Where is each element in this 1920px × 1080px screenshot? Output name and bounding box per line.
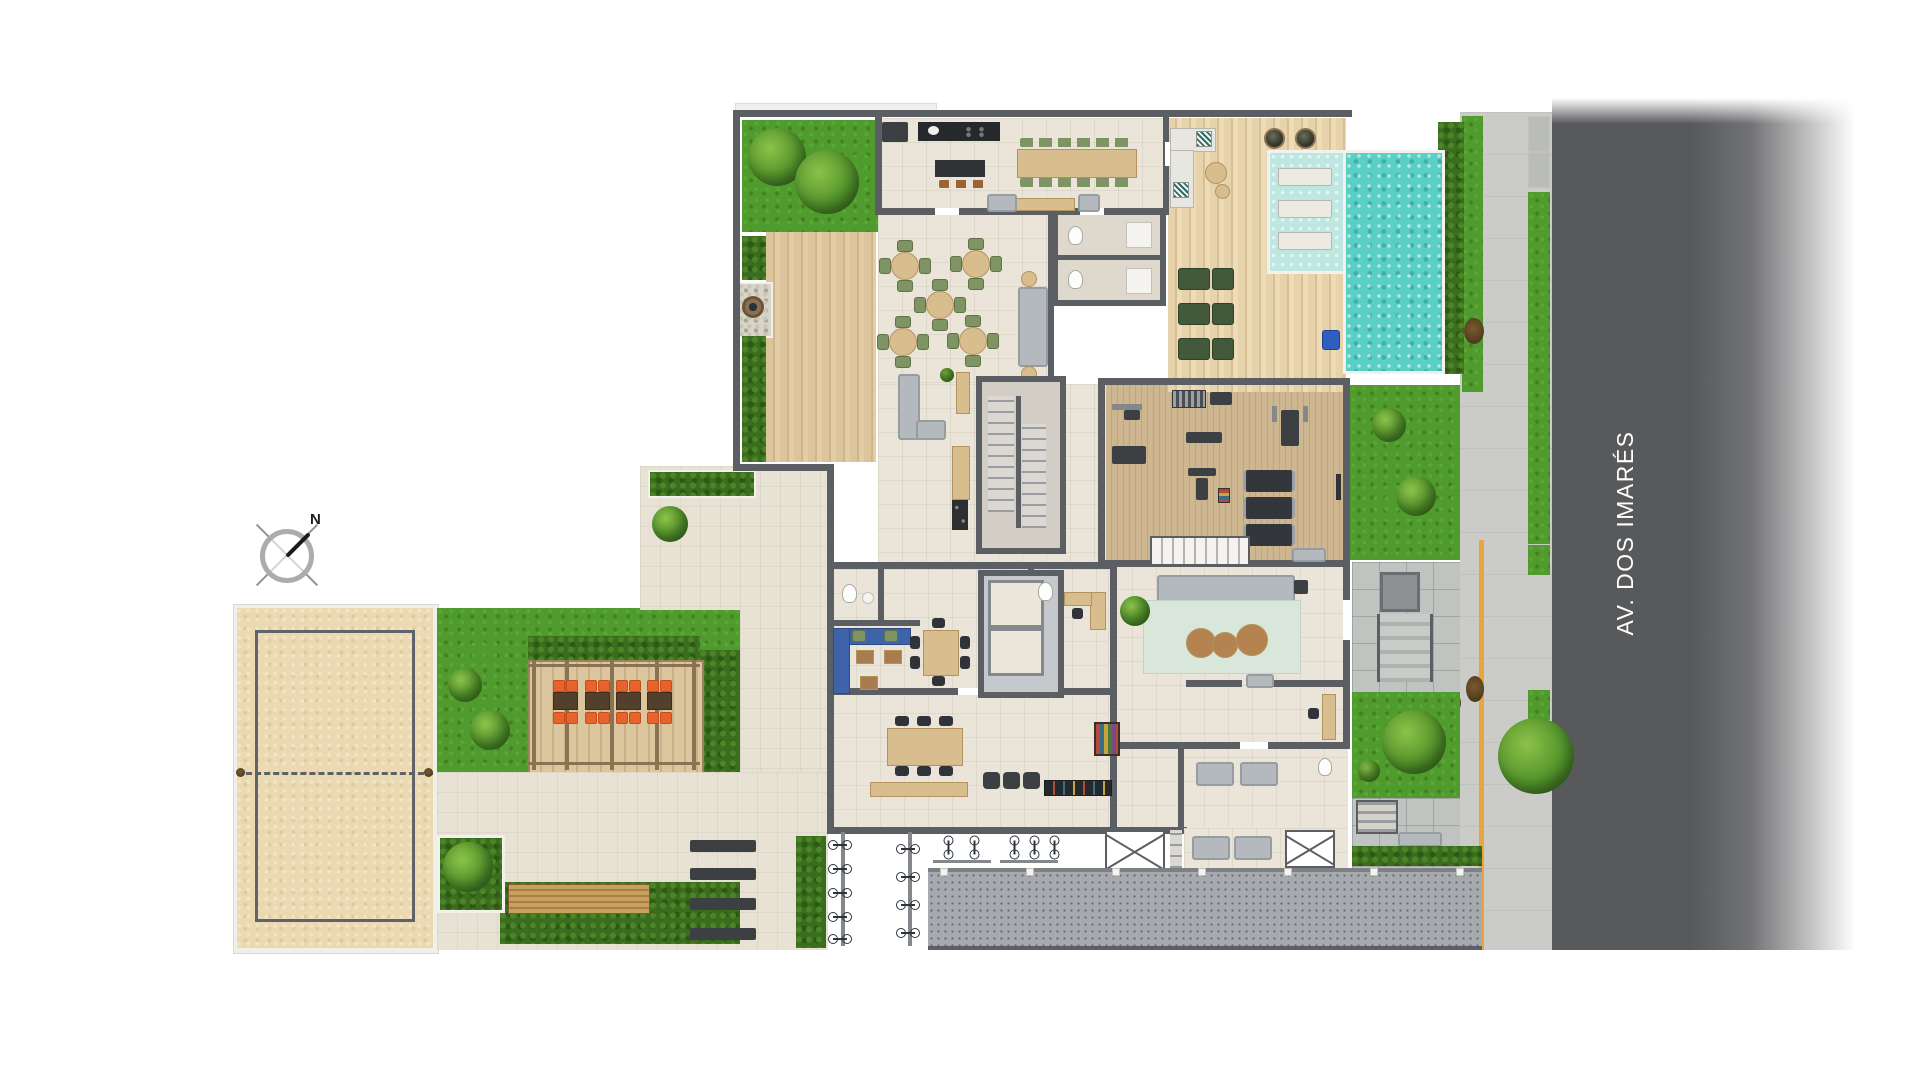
support-kitchen-cooktop bbox=[952, 500, 968, 530]
planter-hedge bbox=[648, 470, 756, 498]
gym-machine bbox=[1112, 446, 1146, 464]
party-chair bbox=[895, 316, 911, 328]
party-chair bbox=[968, 278, 984, 290]
sun-lounger bbox=[1212, 268, 1234, 290]
toilet bbox=[1068, 226, 1083, 245]
potted-plant bbox=[940, 368, 954, 382]
garage-lobby-fixture bbox=[1192, 836, 1230, 860]
deck-side-table bbox=[1215, 184, 1230, 199]
outdoor-fitness-equipment bbox=[690, 898, 756, 910]
wall-wc-block-bottom bbox=[1052, 300, 1165, 306]
compass-north-label: N bbox=[310, 511, 321, 528]
driveway-hedge-row bbox=[1352, 846, 1482, 866]
pergola-beam bbox=[692, 660, 696, 770]
pergola-chair bbox=[598, 680, 610, 692]
bike-rack-rail bbox=[1000, 860, 1058, 863]
pergola-table bbox=[647, 692, 672, 710]
pergola-chair bbox=[566, 680, 578, 692]
wing-hedge-right bbox=[700, 650, 740, 772]
treadmill bbox=[1243, 524, 1295, 546]
media-console bbox=[1044, 780, 1112, 796]
bicycle bbox=[1009, 836, 1020, 860]
service-steps bbox=[1356, 800, 1398, 834]
party-sofa bbox=[1018, 287, 1048, 367]
garden-tree bbox=[795, 150, 859, 214]
pergola-chair bbox=[566, 712, 578, 724]
pergola-rail bbox=[528, 762, 700, 765]
compass: N bbox=[238, 505, 334, 601]
gym-machine-seat bbox=[1124, 410, 1140, 420]
party-chair bbox=[954, 297, 966, 313]
wall-top-main bbox=[733, 110, 1352, 117]
wall-wc-block-left bbox=[1052, 214, 1058, 306]
elevator-cabin bbox=[988, 580, 1044, 628]
wall-left-upper bbox=[733, 110, 740, 470]
kids-ottoman bbox=[884, 650, 902, 664]
gym-side-garden bbox=[1350, 385, 1460, 560]
toilet bbox=[1038, 582, 1053, 601]
pergola-chair bbox=[616, 712, 628, 724]
pergola-chair bbox=[660, 680, 672, 692]
games-chair bbox=[939, 766, 953, 776]
party-chair bbox=[947, 333, 959, 349]
ramp-post bbox=[1370, 868, 1378, 876]
meeting-chair bbox=[960, 656, 970, 669]
bicycle bbox=[943, 836, 954, 860]
stair-flight bbox=[1022, 424, 1046, 528]
party-chair bbox=[932, 319, 948, 331]
bicycle bbox=[969, 836, 980, 860]
party-chair bbox=[879, 258, 891, 274]
party-table bbox=[962, 250, 990, 278]
shower-stall bbox=[1126, 222, 1152, 248]
pergola-chair bbox=[647, 680, 659, 692]
dry-shrub bbox=[1464, 318, 1484, 344]
office-desk bbox=[1090, 592, 1106, 630]
striped-cushion bbox=[1196, 131, 1212, 147]
planter-big-bush bbox=[443, 842, 493, 892]
toilet bbox=[842, 584, 857, 603]
party-chair bbox=[932, 279, 948, 291]
bicycle bbox=[828, 888, 852, 899]
gym-bench bbox=[1186, 432, 1222, 443]
pouf bbox=[983, 772, 1000, 789]
garage-ramp-driveway bbox=[928, 872, 1482, 946]
shower-stall bbox=[1126, 268, 1152, 294]
hall-console bbox=[1015, 198, 1075, 211]
sidewalk-grass-patch bbox=[1528, 545, 1550, 575]
entry-totem bbox=[1380, 572, 1420, 612]
sun-lounger bbox=[1178, 303, 1210, 325]
wall-wc-a-divider bbox=[878, 562, 884, 624]
stair-divider bbox=[1016, 396, 1021, 528]
console-with-plant bbox=[956, 372, 970, 414]
pouf bbox=[1003, 772, 1020, 789]
terrace-plants bbox=[742, 336, 766, 462]
wet-deck-lounger bbox=[1278, 200, 1332, 218]
games-chair bbox=[895, 716, 909, 726]
wet-deck-lounger bbox=[1278, 232, 1332, 250]
door-gap bbox=[935, 208, 959, 215]
games-chair bbox=[939, 716, 953, 726]
ramp-post bbox=[1026, 868, 1034, 876]
party-chair bbox=[914, 297, 926, 313]
sidewalk-grass-patch bbox=[1528, 690, 1550, 720]
wet-deck-lounger bbox=[1278, 168, 1332, 186]
ramp-post bbox=[1112, 868, 1120, 876]
pool-sofa-l bbox=[1170, 150, 1194, 208]
games-chair bbox=[917, 716, 931, 726]
terrace-plants bbox=[742, 236, 766, 280]
dry-shrub bbox=[1466, 676, 1484, 702]
pergola-table bbox=[585, 692, 610, 710]
sidewalk-grass-strip-right bbox=[1528, 192, 1550, 544]
wall-wc-a-bottom bbox=[830, 620, 920, 626]
side-table bbox=[1021, 271, 1037, 287]
garage-elevator bbox=[1285, 830, 1335, 868]
treadmill bbox=[1243, 497, 1295, 519]
pergola-chair bbox=[629, 680, 641, 692]
street-tree bbox=[1498, 718, 1574, 794]
office-desk bbox=[1064, 592, 1092, 606]
stair-flight bbox=[988, 396, 1014, 512]
wall-gym-top bbox=[1098, 378, 1350, 385]
party-chair bbox=[950, 256, 962, 272]
treadmill bbox=[1243, 470, 1295, 492]
service-stair bbox=[1170, 830, 1182, 868]
bicycle bbox=[896, 844, 920, 855]
hall-sideboard bbox=[1078, 194, 1100, 212]
dining-chair-row bbox=[1020, 138, 1132, 147]
party-chair bbox=[919, 258, 931, 274]
bicycle bbox=[828, 864, 852, 875]
court-boundary-line bbox=[255, 630, 415, 922]
deck-planter bbox=[1295, 128, 1316, 149]
kids-ottoman bbox=[860, 676, 878, 690]
cooktop-burners bbox=[962, 126, 988, 137]
entry-steps bbox=[1377, 614, 1433, 682]
kids-ottoman bbox=[856, 650, 874, 664]
ramp-post bbox=[1284, 868, 1292, 876]
bicycle bbox=[896, 900, 920, 911]
garden-plant bbox=[1372, 408, 1406, 442]
garden-palm bbox=[1358, 760, 1380, 782]
street-asphalt bbox=[1552, 98, 1882, 950]
street-bench bbox=[1398, 832, 1442, 847]
wall-hall-left bbox=[875, 110, 882, 215]
grill-appliance bbox=[882, 122, 908, 142]
bicycle bbox=[896, 872, 920, 883]
street-top-fade bbox=[1552, 98, 1882, 124]
pergola-chair bbox=[629, 712, 641, 724]
party-chair bbox=[897, 280, 913, 292]
planter-tree bbox=[652, 506, 688, 542]
wall-deck-bottom bbox=[733, 464, 833, 471]
party-chair bbox=[917, 334, 929, 350]
utility-box bbox=[1528, 152, 1550, 188]
barbell-rack-post bbox=[1272, 406, 1277, 422]
party-chair bbox=[990, 256, 1002, 272]
sun-lounger bbox=[1212, 303, 1234, 325]
bench-press-bench bbox=[1281, 410, 1299, 446]
gym-mat-box bbox=[1210, 392, 1232, 405]
wall-wc-block-right bbox=[1160, 214, 1166, 306]
pergola-table bbox=[553, 692, 578, 710]
bicycle bbox=[828, 912, 852, 923]
bike-rack-rail bbox=[933, 860, 991, 863]
pergola-chair bbox=[585, 680, 597, 692]
door-gap bbox=[1343, 600, 1350, 640]
net-post bbox=[236, 768, 245, 777]
wing-bush bbox=[470, 710, 510, 750]
outdoor-fitness-equipment bbox=[690, 928, 756, 940]
bicycle bbox=[828, 840, 852, 851]
weight-plates bbox=[1218, 488, 1230, 503]
lounge-l-sofa bbox=[916, 420, 946, 440]
ramp-post bbox=[940, 868, 948, 876]
pergola-chair bbox=[553, 712, 565, 724]
hedge-by-building bbox=[796, 836, 826, 948]
service-elevator bbox=[1105, 830, 1165, 872]
kids-cushion bbox=[852, 630, 866, 642]
wing-bush bbox=[448, 668, 482, 702]
meeting-chair bbox=[932, 676, 945, 686]
meeting-chair bbox=[910, 656, 920, 669]
games-chair bbox=[895, 766, 909, 776]
wing-hedge-top bbox=[528, 636, 700, 660]
meeting-chair bbox=[910, 636, 920, 649]
party-table bbox=[891, 252, 919, 280]
wall-lower-rooms-top bbox=[830, 562, 1115, 569]
pot-on-stove bbox=[928, 126, 939, 135]
accessible-pool-lift bbox=[1322, 330, 1340, 350]
long-dining-table bbox=[1017, 149, 1137, 178]
toilet bbox=[1318, 758, 1332, 776]
concierge-desk bbox=[1322, 694, 1336, 740]
lobby-plant bbox=[1120, 596, 1150, 626]
sidewalk-grass-strip-left bbox=[1462, 116, 1483, 392]
wall-right-main bbox=[1343, 378, 1350, 745]
striped-cushion bbox=[1173, 182, 1189, 198]
meeting-table bbox=[923, 630, 959, 676]
lobby-sofa bbox=[1157, 575, 1295, 603]
elevator-cabin bbox=[988, 628, 1044, 676]
garden-plant bbox=[1396, 476, 1436, 516]
garden-shrub-cluster bbox=[1382, 710, 1446, 774]
sink bbox=[862, 592, 874, 604]
support-kitchen-counter bbox=[952, 446, 970, 500]
pergola-chair bbox=[598, 712, 610, 724]
party-table bbox=[959, 327, 987, 355]
door-gap bbox=[1240, 742, 1268, 749]
party-chair bbox=[987, 333, 999, 349]
pergola-chair bbox=[660, 712, 672, 724]
entry-mat bbox=[1246, 674, 1274, 688]
office-chair bbox=[1072, 608, 1083, 619]
service-fixture bbox=[1196, 762, 1234, 786]
barbell-rack-post bbox=[1303, 406, 1308, 422]
hall-sideboard bbox=[987, 194, 1017, 212]
outdoor-fitness-equipment bbox=[690, 840, 756, 852]
outdoor-fitness-equipment bbox=[690, 868, 756, 880]
utility-box bbox=[1528, 116, 1550, 152]
swimming-pool bbox=[1343, 150, 1445, 374]
ramp-post bbox=[1456, 868, 1464, 876]
pouf bbox=[1023, 772, 1040, 789]
bicycle bbox=[896, 928, 920, 939]
games-chair bbox=[917, 766, 931, 776]
cable-machine-seat bbox=[1196, 478, 1208, 500]
pergola-beam bbox=[532, 660, 536, 770]
dining-chair-row bbox=[1020, 178, 1132, 187]
wall-wc-block-divider bbox=[1052, 255, 1165, 260]
bicycle bbox=[828, 934, 852, 945]
net-post bbox=[424, 768, 433, 777]
kids-cushion bbox=[884, 630, 898, 642]
dumbbell-rack bbox=[1172, 390, 1206, 408]
deck-side-table bbox=[1205, 162, 1227, 184]
party-chair bbox=[877, 334, 889, 350]
wall-tv bbox=[1336, 474, 1341, 500]
wall-service bbox=[1178, 749, 1184, 829]
bicycle bbox=[1049, 836, 1060, 860]
sun-lounger bbox=[1178, 338, 1210, 360]
vestibule-wall bbox=[1186, 680, 1242, 687]
garage-lobby-fixture bbox=[1234, 836, 1272, 860]
pergola-chair bbox=[585, 712, 597, 724]
floor-plan-canvas: AV. DOS IMARÉS N bbox=[0, 0, 1920, 1080]
vestibule-wall bbox=[1272, 680, 1350, 687]
party-chair bbox=[895, 356, 911, 368]
wall-lobby-bottom bbox=[1117, 742, 1350, 749]
lobby-side-table bbox=[1294, 580, 1308, 594]
wall-gym-left bbox=[1098, 378, 1105, 567]
party-chair bbox=[965, 315, 981, 327]
party-chair bbox=[965, 355, 981, 367]
lobby-coffee-table bbox=[1212, 632, 1238, 658]
gym-stairs bbox=[1150, 536, 1250, 566]
concierge-chair bbox=[1308, 708, 1319, 719]
deck-planter bbox=[1264, 128, 1285, 149]
party-chair bbox=[897, 240, 913, 252]
plaza-wood-bench bbox=[508, 884, 650, 914]
party-table bbox=[926, 291, 954, 319]
service-fixture bbox=[1240, 762, 1278, 786]
fountain bbox=[742, 296, 764, 318]
meeting-chair bbox=[932, 618, 945, 628]
street-name-label: AV. DOS IMARÉS bbox=[1612, 408, 1638, 658]
pergola-chair bbox=[616, 680, 628, 692]
gym-bench-low bbox=[1292, 548, 1326, 562]
games-table bbox=[887, 728, 963, 766]
terrace-deck-floor bbox=[766, 230, 876, 462]
kitchen-island bbox=[935, 160, 985, 177]
lobby-coffee-table bbox=[1236, 624, 1268, 656]
bookshelf bbox=[1094, 722, 1120, 756]
toilet bbox=[1068, 270, 1083, 289]
island-stools bbox=[939, 180, 985, 188]
bicycle bbox=[1029, 836, 1040, 860]
volleyball-net-line bbox=[237, 772, 433, 775]
pergola-rail bbox=[528, 664, 700, 667]
pergola-chair bbox=[647, 712, 659, 724]
party-table bbox=[889, 328, 917, 356]
outdoor-corridor bbox=[740, 608, 828, 772]
cable-machine bbox=[1188, 468, 1216, 476]
kids-sofa-blue bbox=[833, 628, 850, 694]
party-chair bbox=[968, 238, 984, 250]
sun-lounger bbox=[1178, 268, 1210, 290]
games-sideboard bbox=[870, 782, 968, 797]
ramp-post bbox=[1198, 868, 1206, 876]
pergola-table bbox=[616, 692, 641, 710]
pergola-chair bbox=[553, 680, 565, 692]
sun-lounger bbox=[1212, 338, 1234, 360]
meeting-chair bbox=[960, 636, 970, 649]
pergola-beam bbox=[610, 660, 614, 770]
